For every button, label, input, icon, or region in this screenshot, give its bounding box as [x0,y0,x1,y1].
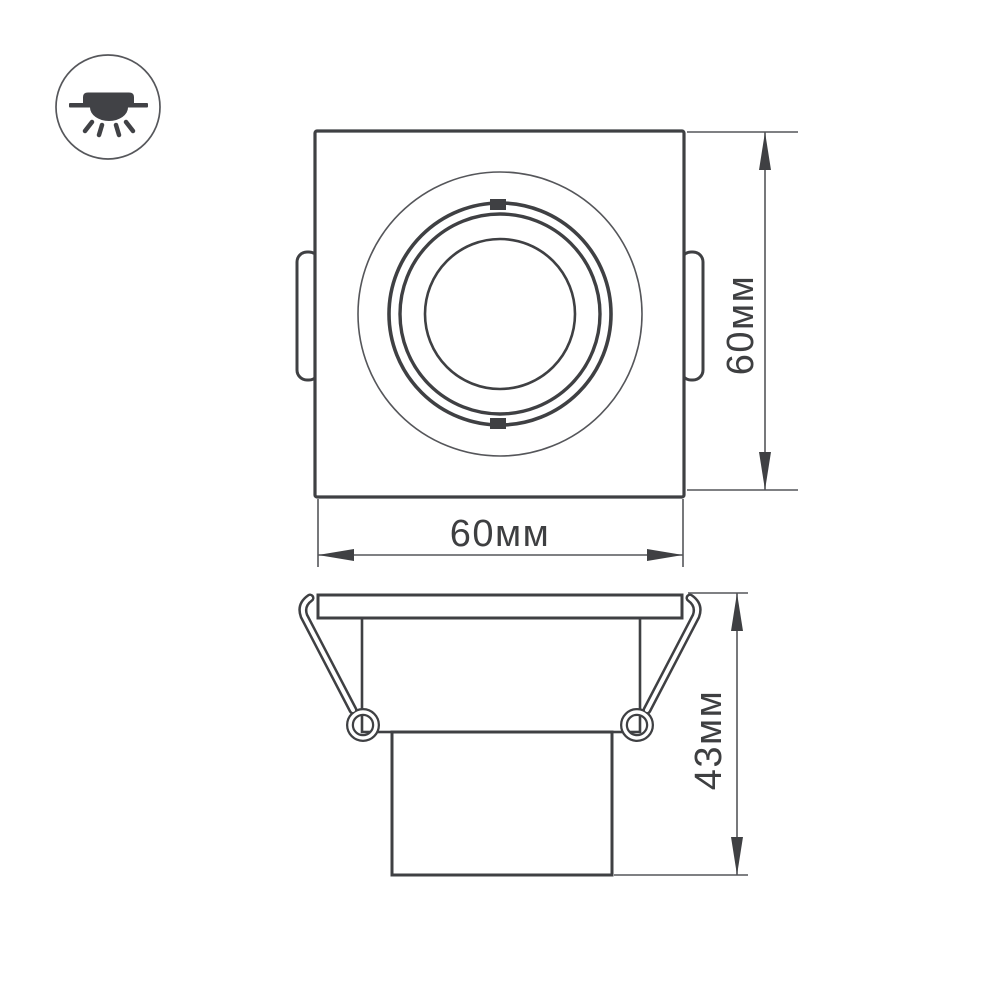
height-dimension-label: 60мм [720,275,762,376]
trim-flange [318,595,682,618]
width-arrow-left [318,549,354,561]
heatsink-driver-box [392,732,612,875]
icon-light-rays [85,122,133,135]
drawing-svg: 60мм 60мм 43мм [0,0,1000,1000]
side-view-drawing [303,595,697,875]
square-trim-frame [315,131,684,497]
housing-body [362,618,640,732]
gimbal-pivot-tab-bottom [490,418,506,429]
icon-housing [83,93,134,104]
icon-ceiling-bar [69,103,148,108]
width-dimension-label: 60мм [450,513,551,555]
icon-lamp-dome [90,108,128,122]
depth-arrow-top [731,593,743,631]
width-arrow-right [647,549,683,561]
height-arrow-top [759,132,771,170]
depth-arrow-bottom [731,837,743,875]
technical-drawing-page: 60мм 60мм 43мм [0,0,1000,1000]
depth-dimension-label: 43мм [688,690,730,791]
gimbal-pivot-tab-top [490,199,506,210]
width-dimension: 60мм [318,499,683,567]
recessed-downlight-icon [56,55,160,159]
top-view-drawing [297,131,703,497]
height-arrow-bottom [759,452,771,490]
